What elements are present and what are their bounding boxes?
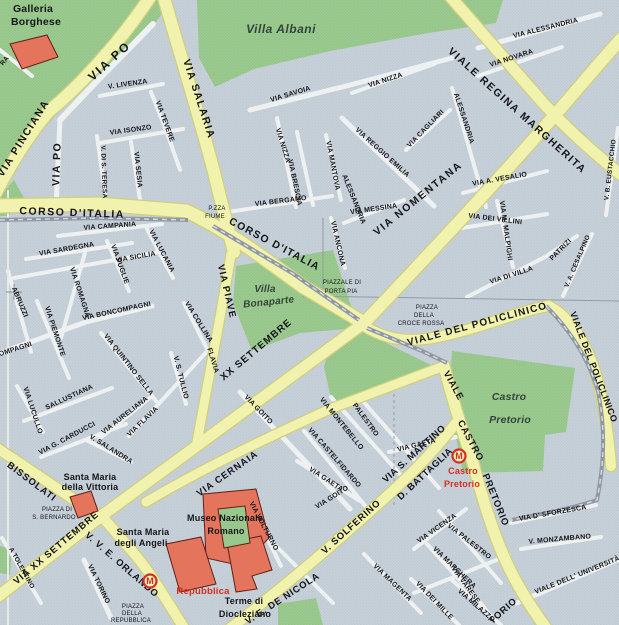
label-degli-angeli: degli Angeli [114,538,167,548]
label-s-bernardo: S. BERNARDO [32,515,76,521]
label-repubblica: REPUBBLICA [111,618,151,624]
label-romano: Romano [207,526,245,536]
label-villa: Villa [254,284,275,295]
label-museo-nazionale: Museo Nazionale [187,513,263,523]
rome-street-map: GalleriaBorgheseVilla AlbaniRAVIA POVIA … [0,0,619,625]
label-santa-maria: Santa Maria [117,527,171,537]
label-porta-pia: PORTA PIA [325,289,358,295]
label-pretorio: Pretorio [444,479,480,489]
map-canvas: GalleriaBorgheseVilla AlbaniRAVIA POVIA … [0,0,619,625]
label-croce-rossa: CROCE ROSSA [398,321,445,327]
metro-castro-pretorio: M [453,450,466,463]
label-borghese: Borghese [11,16,61,28]
label-via-po: VIA PO [50,142,64,187]
label-santa-maria: Santa Maria [64,472,118,482]
metro-repubblica-glyph: M [146,576,154,586]
label-piazza: PIAZZA [416,305,438,311]
label-fiume: FIUME [205,214,225,220]
label-p-zza: P.ZZA [208,206,225,212]
label-pretorio: Pretorio [489,414,531,426]
label-repubblica: Repubblica [176,586,230,597]
label-galleria: Galleria [13,3,53,15]
label-villa-albani: Villa Albani [246,22,316,36]
label-piazza-di: PIAZZA DI [42,507,72,513]
label-della: DELLA [414,313,434,319]
label-castro: Castro [448,466,478,476]
label-piazza: PIAZZA [122,604,144,610]
metro-repubblica: M [144,575,157,588]
label-terme-di: Terme di [225,596,263,606]
label-piazzale-di: PIAZZALE DI [323,280,361,286]
label-castro: Castro [492,391,527,403]
label-della-vittoria: della Vittoria [62,482,119,492]
metro-castro-pretorio-glyph: M [455,451,463,461]
label-della: DELLA [122,611,142,617]
